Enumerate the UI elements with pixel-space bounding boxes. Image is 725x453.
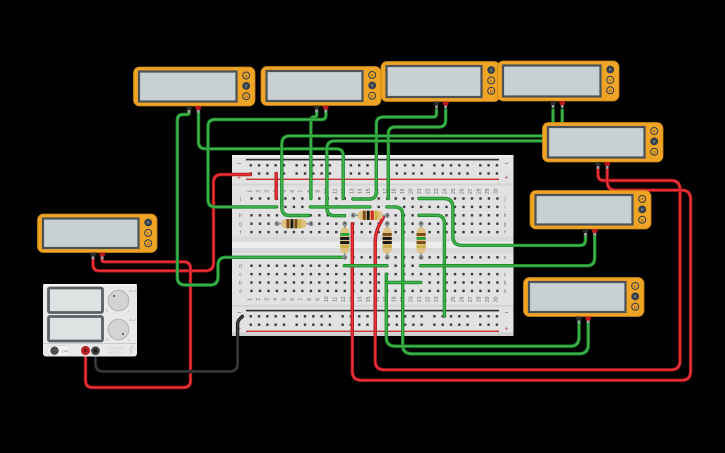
svg-text:−: − [504, 310, 508, 317]
svg-text:18: 18 [392, 188, 398, 194]
svg-text:14: 14 [358, 296, 364, 302]
svg-text:28: 28 [477, 188, 483, 194]
svg-text:V: V [641, 207, 644, 212]
svg-text:b: b [504, 280, 507, 286]
svg-text:+: + [504, 175, 508, 182]
svg-text:30: 30 [493, 188, 499, 194]
svg-text:22: 22 [426, 188, 432, 194]
svg-text:A: A [245, 73, 248, 78]
svg-text:A: A [634, 284, 637, 289]
svg-text:V: V [147, 230, 150, 235]
svg-text:14: 14 [358, 188, 364, 194]
svg-text:11: 11 [332, 188, 338, 193]
svg-text:26: 26 [460, 296, 466, 302]
svg-text:18: 18 [392, 296, 398, 302]
svg-text:V: V [245, 83, 248, 88]
svg-text:j: j [503, 196, 505, 202]
svg-text:13: 13 [349, 188, 355, 194]
svg-text:Ω: Ω [245, 94, 248, 99]
svg-text:0: 0 [106, 338, 108, 342]
svg-text:1: 1 [248, 298, 254, 301]
svg-text:A: A [490, 68, 493, 73]
svg-text:2: 2 [256, 190, 262, 193]
svg-text:h: h [239, 213, 242, 219]
svg-text:1: 1 [248, 190, 254, 193]
svg-text:•: • [128, 309, 129, 313]
svg-text:2: 2 [256, 298, 262, 301]
svg-text:a: a [504, 289, 507, 295]
svg-text:−: − [504, 161, 508, 168]
svg-text:b: b [239, 280, 242, 286]
svg-text:0: 0 [106, 309, 108, 313]
svg-text:4: 4 [273, 298, 279, 301]
svg-text:3: 3 [265, 298, 271, 301]
svg-text:Ω: Ω [634, 304, 637, 309]
svg-text:A: A [147, 220, 150, 225]
svg-text:O—C: O—C [129, 289, 138, 293]
svg-text:19: 19 [400, 188, 406, 194]
svg-text:27: 27 [468, 188, 474, 194]
svg-text:A: A [371, 73, 374, 78]
svg-text:a: a [239, 289, 242, 295]
svg-text:15: 15 [366, 296, 372, 302]
svg-text:5: 5 [281, 298, 287, 301]
svg-text:23: 23 [434, 188, 440, 194]
svg-text:21: 21 [417, 296, 423, 302]
svg-text:A: A [641, 197, 644, 202]
svg-text:h: h [504, 213, 507, 219]
svg-text:10: 10 [324, 296, 330, 302]
svg-text:15: 15 [366, 188, 372, 194]
svg-text:Ω: Ω [147, 241, 150, 246]
svg-text:g: g [504, 222, 507, 228]
svg-text:3: 3 [265, 190, 271, 193]
svg-text:30: 30 [493, 296, 499, 302]
svg-text:25: 25 [451, 188, 457, 194]
svg-text:OFF: OFF [62, 349, 70, 353]
svg-text:Ω: Ω [641, 217, 644, 222]
svg-text:+: + [504, 326, 508, 333]
svg-text:9: 9 [315, 298, 321, 301]
svg-text:28: 28 [477, 296, 483, 302]
svg-text:V: V [490, 78, 493, 83]
svg-text:29: 29 [485, 188, 491, 194]
svg-text:A: A [653, 129, 656, 134]
svg-text:A: A [609, 67, 612, 72]
svg-text:e: e [504, 255, 507, 261]
svg-text:9: 9 [315, 190, 321, 193]
svg-text:24: 24 [443, 188, 449, 194]
svg-text:22: 22 [426, 296, 432, 302]
svg-text:20: 20 [409, 188, 415, 194]
svg-text:Ω: Ω [490, 88, 493, 93]
svg-text:Ω: Ω [609, 88, 612, 93]
svg-text:27: 27 [468, 296, 474, 302]
svg-text:i: i [504, 205, 505, 211]
svg-text:25: 25 [451, 296, 457, 302]
svg-text:V: V [653, 139, 656, 144]
svg-text:8: 8 [307, 298, 313, 301]
svg-text:6: 6 [290, 190, 296, 193]
svg-text:d: d [239, 264, 242, 270]
svg-text:6: 6 [290, 298, 296, 301]
svg-text:•: • [128, 338, 129, 342]
svg-text:20: 20 [409, 296, 415, 302]
svg-text:−: − [237, 310, 241, 317]
svg-text:Ω: Ω [653, 149, 656, 154]
svg-text:g: g [239, 222, 242, 228]
svg-text:V: V [609, 77, 612, 82]
svg-text:23: 23 [434, 296, 440, 302]
svg-text:V: V [634, 294, 637, 299]
svg-text:26: 26 [460, 188, 466, 194]
svg-text:12: 12 [341, 296, 347, 302]
svg-text:SUPPLY: SUPPLY [109, 351, 124, 355]
svg-text:−: − [237, 161, 241, 168]
svg-text:j: j [239, 196, 241, 202]
svg-text:O—C: O—C [129, 318, 138, 322]
svg-text:29: 29 [485, 296, 491, 302]
svg-text:7: 7 [298, 298, 304, 301]
svg-text:11: 11 [332, 296, 338, 301]
svg-text:7: 7 [298, 190, 304, 193]
svg-text:V: V [371, 83, 374, 88]
svg-text:21: 21 [417, 188, 423, 194]
svg-text:Ω: Ω [371, 93, 374, 98]
